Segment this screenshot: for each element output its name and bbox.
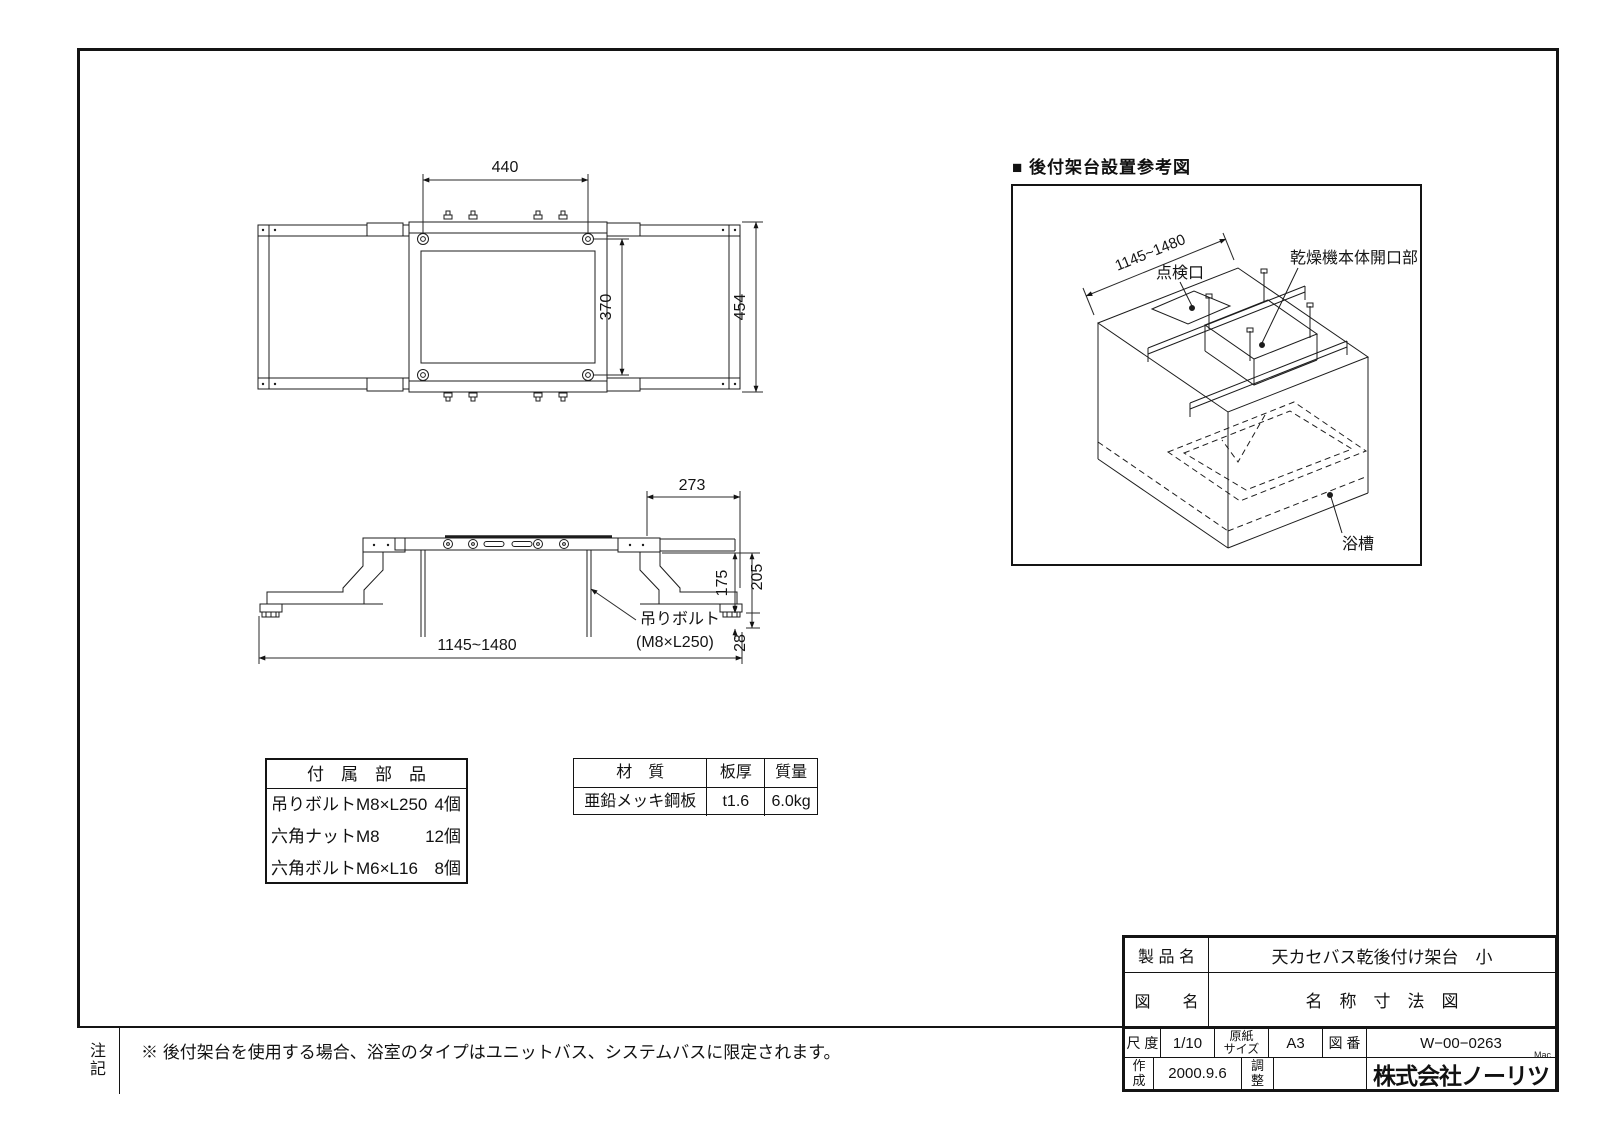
material-table-data-row: 亜鉛メッキ鋼板 t1.6 6.0kg bbox=[574, 788, 817, 816]
notes-label: 注 記 bbox=[77, 1028, 120, 1094]
dim-175: 175 bbox=[714, 570, 731, 597]
company-name: 株式会社ノーリツ bbox=[1367, 1058, 1555, 1089]
part-qty: 4個 bbox=[435, 789, 461, 821]
parts-table-row: 吊りボルトM8×L250 4個 bbox=[267, 789, 466, 821]
dim-440: 440 bbox=[492, 159, 519, 176]
drawing-name-value: 名 称 寸 法 図 bbox=[1209, 973, 1555, 1026]
drawing-name-label: 図 名 bbox=[1125, 973, 1209, 1026]
top-view-plan bbox=[258, 211, 740, 401]
parts-table-header: 付 属 部 品 bbox=[267, 760, 466, 789]
dim-454: 454 bbox=[732, 294, 749, 321]
title-block-product-row: 製 品 名 天カセバス乾後付け架台 小 bbox=[1125, 938, 1555, 973]
notes-row: 注 記 ※ 後付架台を使用する場合、浴室のタイプはユニットバス、システムバスに限… bbox=[77, 1026, 1122, 1092]
drawing-number-label: 図 番 bbox=[1323, 1029, 1367, 1057]
product-name-label: 製 品 名 bbox=[1125, 938, 1209, 972]
title-block-drawing-name-row: 図 名 名 称 寸 法 図 bbox=[1125, 973, 1555, 1027]
material-col-header: 材 質 bbox=[574, 759, 707, 787]
adjust-value-empty bbox=[1274, 1058, 1367, 1089]
part-qty: 8個 bbox=[435, 853, 461, 885]
part-qty: 12個 bbox=[425, 821, 461, 853]
thickness-col-header: 板厚 bbox=[707, 759, 765, 787]
iso-label-bathtub: 浴槽 bbox=[1342, 535, 1374, 553]
material-table: 材 質 板厚 質量 亜鉛メッキ鋼板 t1.6 6.0kg bbox=[573, 758, 818, 815]
hanging-bolt-lines bbox=[421, 550, 591, 637]
iso-label-dryer-opening: 乾燥機本体開口部 bbox=[1290, 249, 1418, 267]
notes-text: ※ 後付架台を使用する場合、浴室のタイプはユニットバス、システムバスに限定されま… bbox=[141, 1038, 841, 1063]
part-name: 六角ナットM8 bbox=[271, 821, 380, 853]
parts-table: 付 属 部 品 吊りボルトM8×L250 4個 六角ナットM8 12個 六角ボル… bbox=[265, 758, 468, 884]
created-date: 2000.9.6 bbox=[1154, 1058, 1242, 1089]
dim-overall-width: 1145~1480 bbox=[437, 637, 516, 654]
adjust-label: 調 整 bbox=[1242, 1058, 1274, 1089]
mac-label: Mac bbox=[1534, 1050, 1551, 1060]
material-table-header-row: 材 質 板厚 質量 bbox=[574, 759, 817, 788]
paper-size-label: 原紙 サイズ bbox=[1215, 1029, 1269, 1057]
scale-label: 尺 度 bbox=[1125, 1029, 1161, 1057]
title-block-created-row: 作 成 2000.9.6 調 整 株式会社ノーリツ bbox=[1125, 1058, 1555, 1089]
title-block: 製 品 名 天カセバス乾後付け架台 小 図 名 名 称 寸 法 図 尺 度 1/… bbox=[1122, 935, 1558, 1092]
mass-col-header: 質量 bbox=[765, 759, 817, 787]
dim-205: 205 bbox=[749, 564, 766, 591]
parts-table-row: 六角ボルトM6×L16 8個 bbox=[267, 853, 466, 885]
product-name-value: 天カセバス乾後付け架台 小 bbox=[1209, 938, 1555, 972]
part-name: 吊りボルトM8×L250 bbox=[271, 789, 427, 821]
scale-value: 1/10 bbox=[1161, 1029, 1215, 1057]
iso-frame-border bbox=[1012, 185, 1421, 565]
paper-size-value: A3 bbox=[1269, 1029, 1323, 1057]
dim-273: 273 bbox=[679, 477, 706, 494]
iso-view-title: ■ 後付架台設置参考図 bbox=[1012, 153, 1191, 178]
label-hanging-bolt-spec: (M8×L250) bbox=[636, 634, 714, 651]
title-block-scale-row: 尺 度 1/10 原紙 サイズ A3 図 番 W−00−0263 bbox=[1125, 1027, 1555, 1058]
dim-28: 28 bbox=[732, 634, 749, 652]
drawing-number-value: W−00−0263 bbox=[1367, 1029, 1555, 1057]
iso-label-inspection: 点検口 bbox=[1156, 264, 1204, 282]
material-value: 亜鉛メッキ鋼板 bbox=[574, 788, 707, 816]
dim-370: 370 bbox=[598, 294, 615, 321]
created-label: 作 成 bbox=[1125, 1058, 1154, 1089]
parts-table-row: 六角ナットM8 12個 bbox=[267, 821, 466, 853]
label-hanging-bolt: 吊りボルト bbox=[640, 610, 720, 628]
part-name: 六角ボルトM6×L16 bbox=[271, 853, 418, 885]
mass-value: 6.0kg bbox=[765, 788, 817, 816]
iso-drawing bbox=[1098, 268, 1368, 548]
thickness-value: t1.6 bbox=[707, 788, 765, 816]
